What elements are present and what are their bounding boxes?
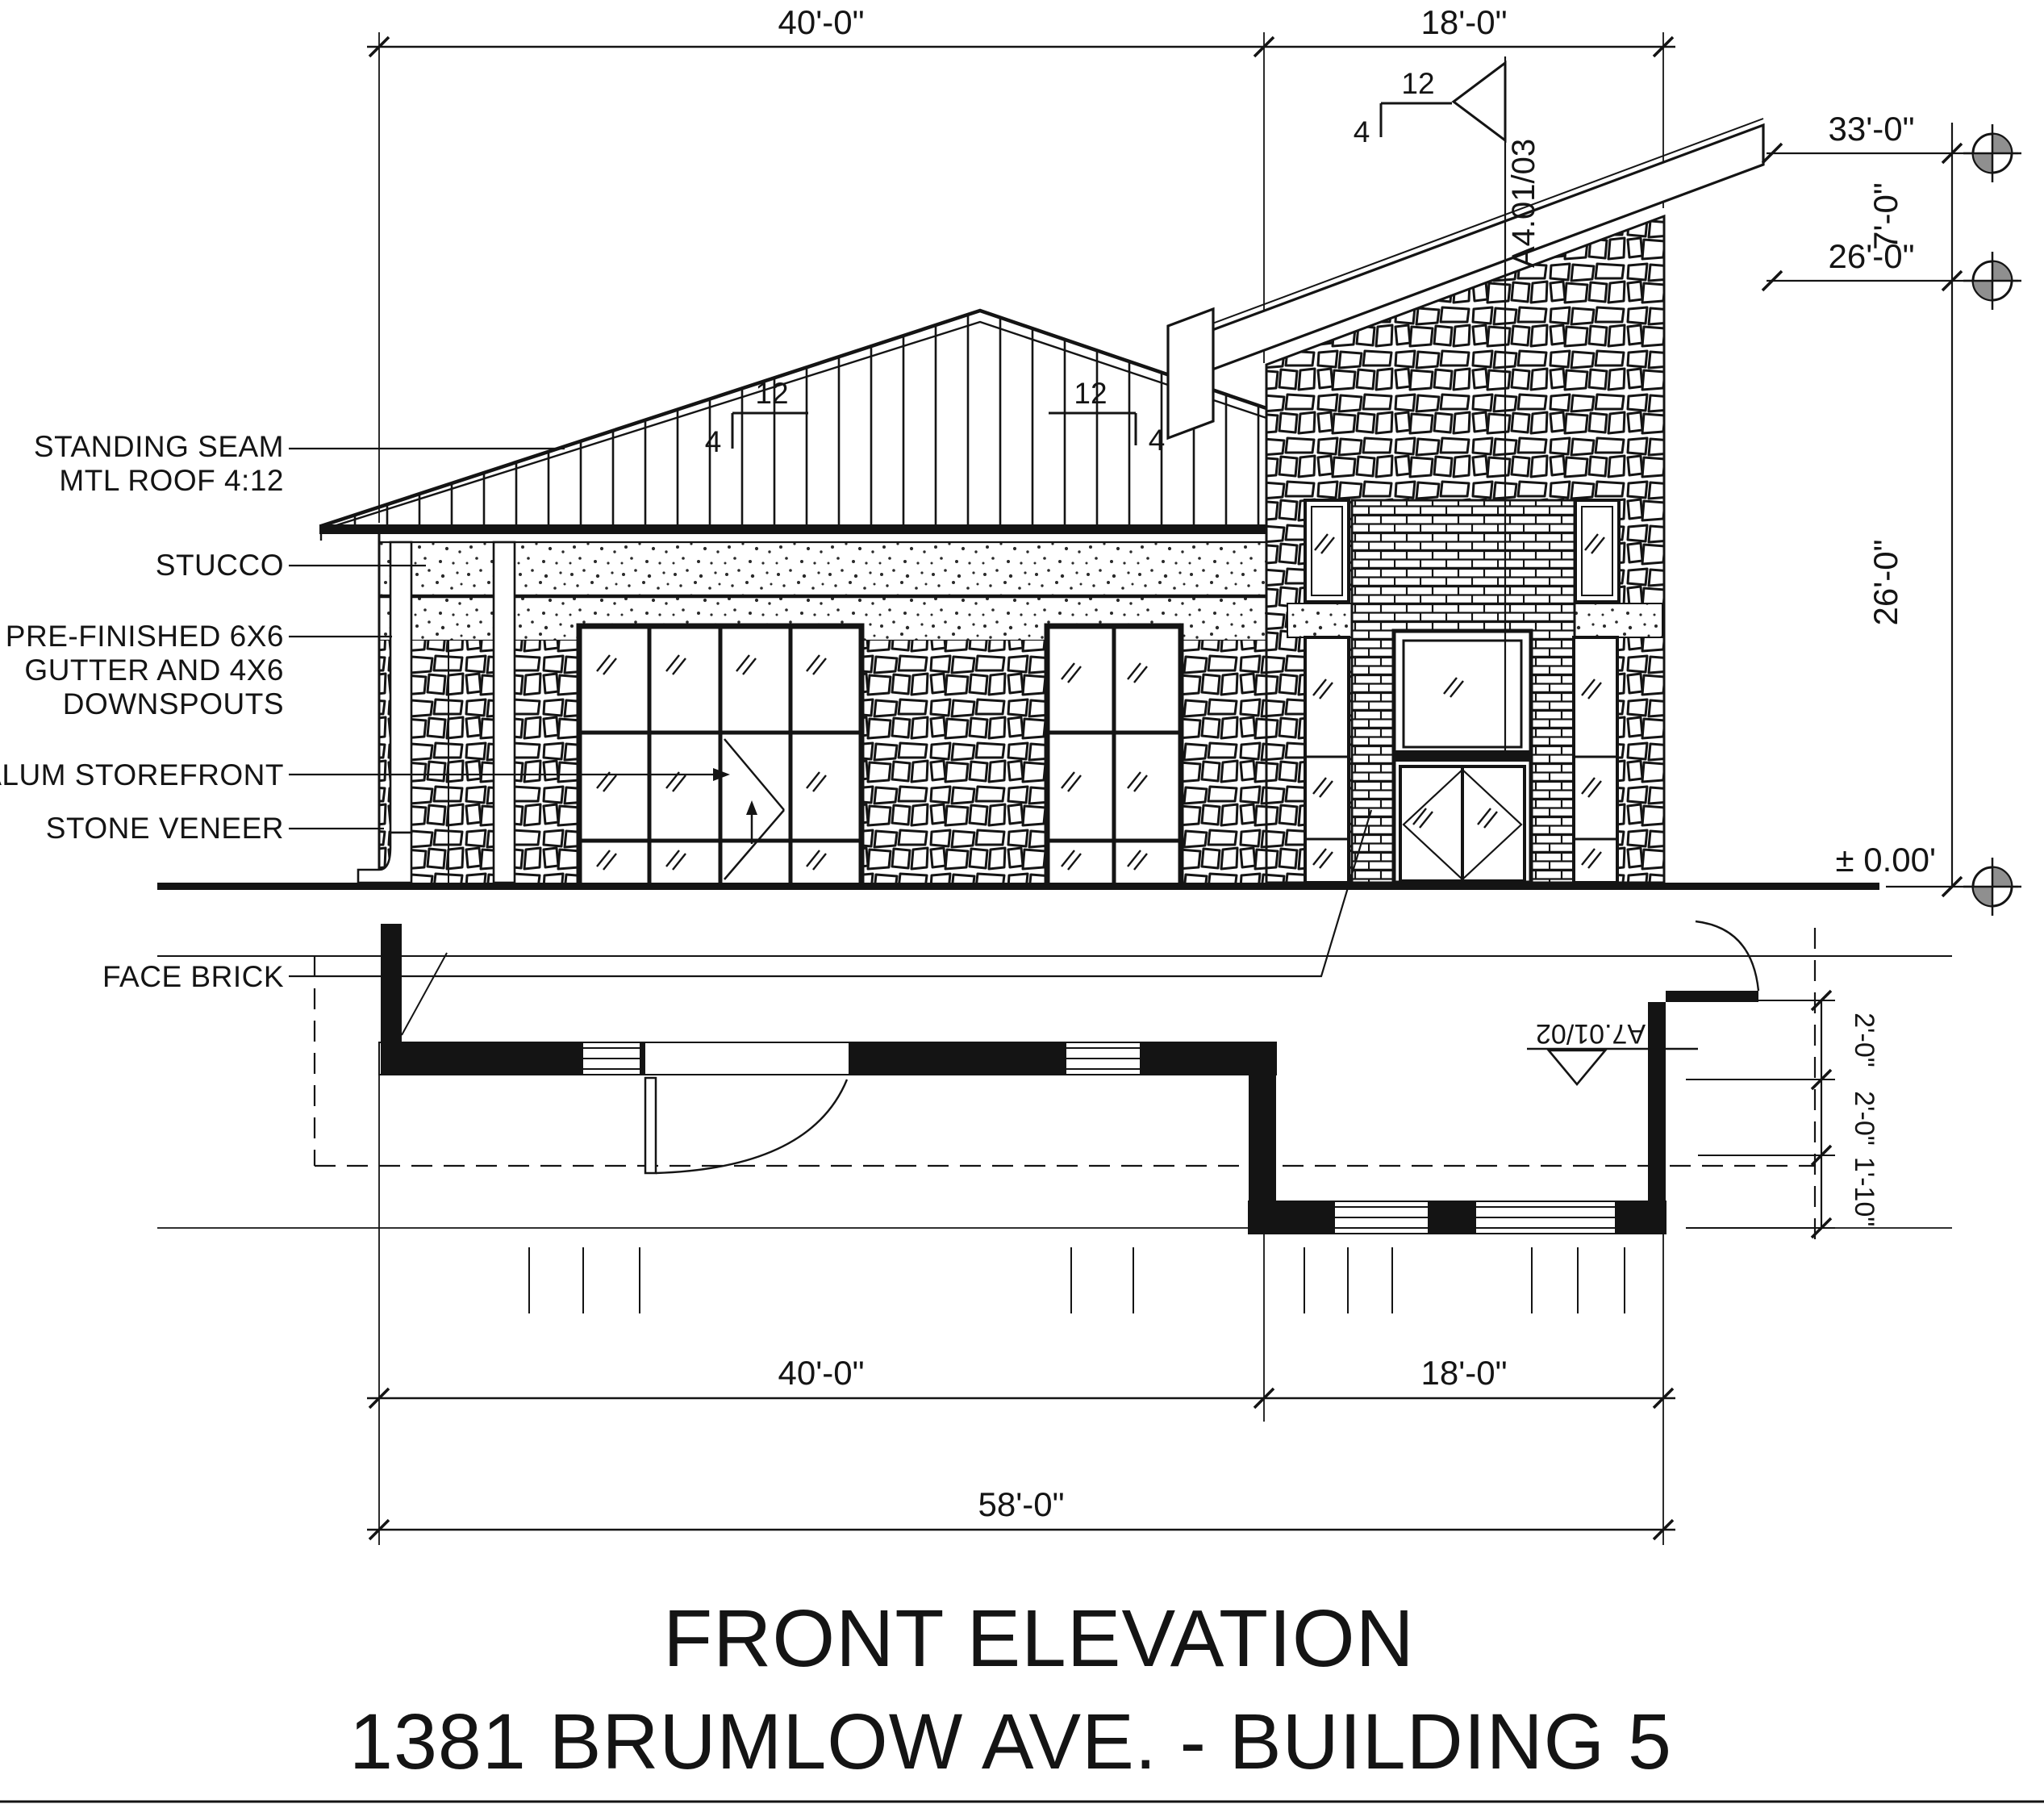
tower-lower-window-left bbox=[1305, 637, 1349, 883]
label-standing-seam-2: MTL ROOF 4:12 bbox=[59, 464, 284, 497]
tower-upper-window-left bbox=[1305, 500, 1349, 602]
main-building-elevation bbox=[319, 311, 1268, 886]
sill-band-right bbox=[1572, 603, 1662, 637]
slope-run: 12 bbox=[1401, 67, 1434, 100]
dim-bottom-tower: 18'-0" bbox=[1421, 1354, 1508, 1392]
tower-entry-door bbox=[1394, 631, 1531, 883]
standing-seam-roof bbox=[321, 311, 1266, 526]
fascia-end-cap bbox=[1168, 309, 1213, 438]
bottom-dimension-string bbox=[367, 1075, 1675, 1545]
storefront-b bbox=[1047, 626, 1181, 886]
elevation-datum-icon bbox=[1963, 252, 2021, 310]
tower-height-label: 26'-0" bbox=[1867, 540, 1904, 626]
ground-line bbox=[157, 883, 1879, 890]
level-parapet-label: 33'-0" bbox=[1829, 110, 1915, 148]
plan-right-dimensions: 2'-0" 2'-0" 1'-10" bbox=[1686, 991, 1879, 1238]
label-storefront: ALUM STOREFRONT bbox=[0, 758, 284, 791]
elevation-drawing: 40'-0" 18'-0" bbox=[0, 0, 2044, 1804]
label-stone: STONE VENEER bbox=[46, 812, 284, 845]
plan-dim-2: 2'-0" bbox=[1849, 1091, 1879, 1146]
slope-run: 12 bbox=[755, 377, 788, 410]
slope-indicator-tower: 12 4 bbox=[1354, 67, 1452, 148]
section-callout-label: A4.01/03 bbox=[1506, 139, 1541, 268]
roof-eave-fascia bbox=[319, 524, 1268, 534]
label-standing-seam-1: STANDING SEAM bbox=[34, 430, 284, 463]
label-stucco: STUCCO bbox=[156, 549, 284, 582]
elevation-datum-icon bbox=[1963, 124, 2021, 182]
slope-indicator-left: 12 4 bbox=[705, 377, 808, 458]
slope-indicator-right: 12 4 bbox=[1049, 377, 1165, 457]
dim-bottom-main: 40'-0" bbox=[778, 1354, 865, 1392]
slope-rise: 4 bbox=[1149, 424, 1166, 457]
plan-tower-bay bbox=[1249, 921, 1758, 1234]
plan-main-wall bbox=[379, 924, 1276, 1173]
right-level-dimensions: 33'-0" 26'-0" 7'-0" 26'-0" ± 0.00' bbox=[1762, 110, 2021, 916]
dim-top-tower: 18'-0" bbox=[1421, 3, 1508, 41]
plan-door-leaf bbox=[645, 1078, 656, 1173]
plan-grid-ticks bbox=[529, 1247, 1625, 1313]
storefront-a bbox=[579, 626, 861, 886]
slope-rise: 4 bbox=[705, 425, 722, 458]
material-labels: STANDING SEAM MTL ROOF 4:12 STUCCO PRE-F… bbox=[0, 430, 284, 993]
tower-lower-window-right bbox=[1574, 637, 1617, 883]
label-gutter-2: GUTTER AND 4X6 bbox=[24, 654, 284, 687]
plan-dim-1: 2'-0" bbox=[1849, 1013, 1879, 1067]
plan-view: A7.01/02 2'-0" 2'-0" 1'-10" bbox=[157, 921, 1952, 1313]
dim-top-main: 40'-0" bbox=[778, 3, 865, 41]
drawing-title: FRONT ELEVATION bbox=[663, 1593, 1415, 1684]
dim-bottom-total: 58'-0" bbox=[978, 1485, 1065, 1523]
plan-door-swing bbox=[656, 1079, 847, 1173]
detail-flag-icon bbox=[1549, 1050, 1605, 1084]
label-gutter-3: DOWNSPOUTS bbox=[63, 687, 284, 720]
label-brick: FACE BRICK bbox=[102, 960, 284, 993]
slope-run: 12 bbox=[1074, 377, 1107, 410]
label-gutter-1: PRE-FINISHED 6X6 bbox=[6, 620, 284, 653]
tower-upper-window-right bbox=[1575, 500, 1619, 602]
sill-band-left bbox=[1287, 603, 1352, 637]
title-block: FRONT ELEVATION 1381 BRUMLOW AVE. - BUIL… bbox=[349, 1593, 1672, 1785]
level-ground-label: ± 0.00' bbox=[1836, 841, 1936, 879]
plan-detail-label: A7.01/02 bbox=[1536, 1018, 1646, 1049]
section-flag-icon bbox=[1454, 63, 1505, 140]
drawing-subtitle: 1381 BRUMLOW AVE. - BUILDING 5 bbox=[349, 1698, 1672, 1785]
slope-rise: 4 bbox=[1354, 115, 1370, 148]
drawing-sheet: 40'-0" 18'-0" bbox=[0, 0, 2044, 1804]
elevation-datum-icon bbox=[1963, 858, 2021, 916]
downspout-middle bbox=[494, 542, 515, 883]
plan-detail-callout: A7.01/02 bbox=[1527, 1018, 1698, 1084]
plan-dim-3: 1'-10" bbox=[1849, 1157, 1879, 1227]
level-offset-label: 7'-0" bbox=[1867, 182, 1904, 250]
